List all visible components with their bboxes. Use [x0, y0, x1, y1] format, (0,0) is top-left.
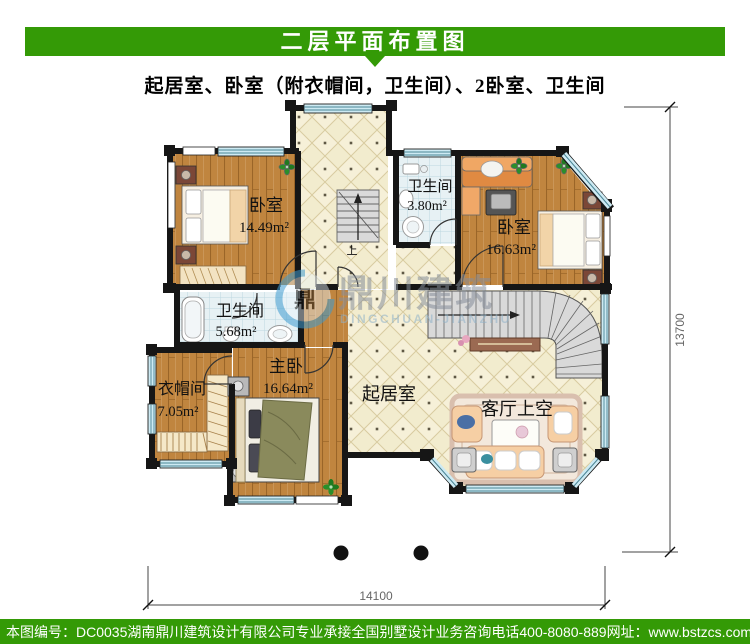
area-bath-mid: 5.68m²: [215, 324, 257, 340]
floor-plan: 上: [0, 95, 750, 620]
page-title: 二层平面布置图: [280, 29, 469, 54]
footer-phone: 咨询电话400-8080-889: [463, 622, 606, 642]
coffee-table: [492, 420, 539, 448]
footer-bar: 本图编号：DC0035 湖南鼎川建筑设计有限公司专业承接全国别墅设计业务 咨询电…: [0, 619, 750, 644]
label-bedroom-tl: 卧室: [249, 196, 283, 215]
window-bedroom-tl-top: [183, 147, 284, 156]
footer-site: 网址：www.bstzcs.com: [607, 622, 750, 642]
banner-arrow-icon: [365, 56, 385, 67]
footer-serial: 本图编号：DC0035: [6, 622, 127, 642]
watermark-logo-char: 鼎: [294, 287, 316, 312]
stairs-upper: [337, 190, 379, 242]
label-master: 主卧: [269, 357, 303, 376]
label-bath-top: 卫生间: [407, 178, 452, 195]
washer: [403, 164, 419, 174]
window-master-bottom: [238, 496, 338, 504]
person: [457, 415, 475, 429]
watermark-en: DINGCHUAN-JIANZHU: [340, 312, 512, 326]
page: 二层平面布置图 起居室、卧室（附衣帽间，卫生间）、2卧室、卫生间: [0, 0, 750, 644]
footer-company: 湖南鼎川建筑设计有限公司专业承接全国别墅设计业务: [127, 622, 463, 642]
window-bath-top: [404, 149, 451, 157]
dimension-right-label: 13700: [673, 313, 687, 347]
column-dot: [414, 546, 429, 561]
label-cloakroom: 衣帽间: [158, 380, 206, 398]
dimension-right: [622, 102, 678, 557]
window-bedroom-tr-right: [604, 216, 610, 256]
label-living: 起居室: [362, 384, 416, 404]
plan-subtitle: 起居室、卧室（附衣帽间，卫生间）、2卧室、卫生间: [0, 71, 750, 98]
watermark-cn: 鼎川建筑: [338, 273, 494, 314]
title-banner: 二层平面布置图: [25, 27, 725, 56]
window-hall-top: [304, 104, 372, 113]
label-bath-mid: 卫生间: [216, 302, 264, 320]
window-cloak-bottom: [160, 460, 222, 468]
area-bedroom-tr: 16.63m²: [486, 242, 536, 258]
person: [481, 454, 493, 464]
area-cloakroom: 7.05m²: [157, 404, 199, 420]
label-void: 客厅上空: [481, 399, 553, 419]
label-bedroom-tr: 卧室: [497, 218, 531, 237]
watermark: 鼎 鼎川建筑 DINGCHUAN-JIANZHU: [279, 273, 512, 326]
area-bedroom-tl: 14.49m²: [239, 220, 289, 236]
area-master: 16.64m²: [263, 381, 313, 397]
area-bath-top: 3.80m²: [407, 199, 447, 214]
window-bedroom-tl-left: [168, 162, 175, 228]
stairs-up-label: 上: [347, 244, 358, 257]
dimension-bottom-label: 14100: [359, 589, 393, 603]
column-dot: [334, 546, 349, 561]
desk-lamp-icon: [481, 161, 503, 177]
dimension-bottom: [143, 566, 610, 610]
